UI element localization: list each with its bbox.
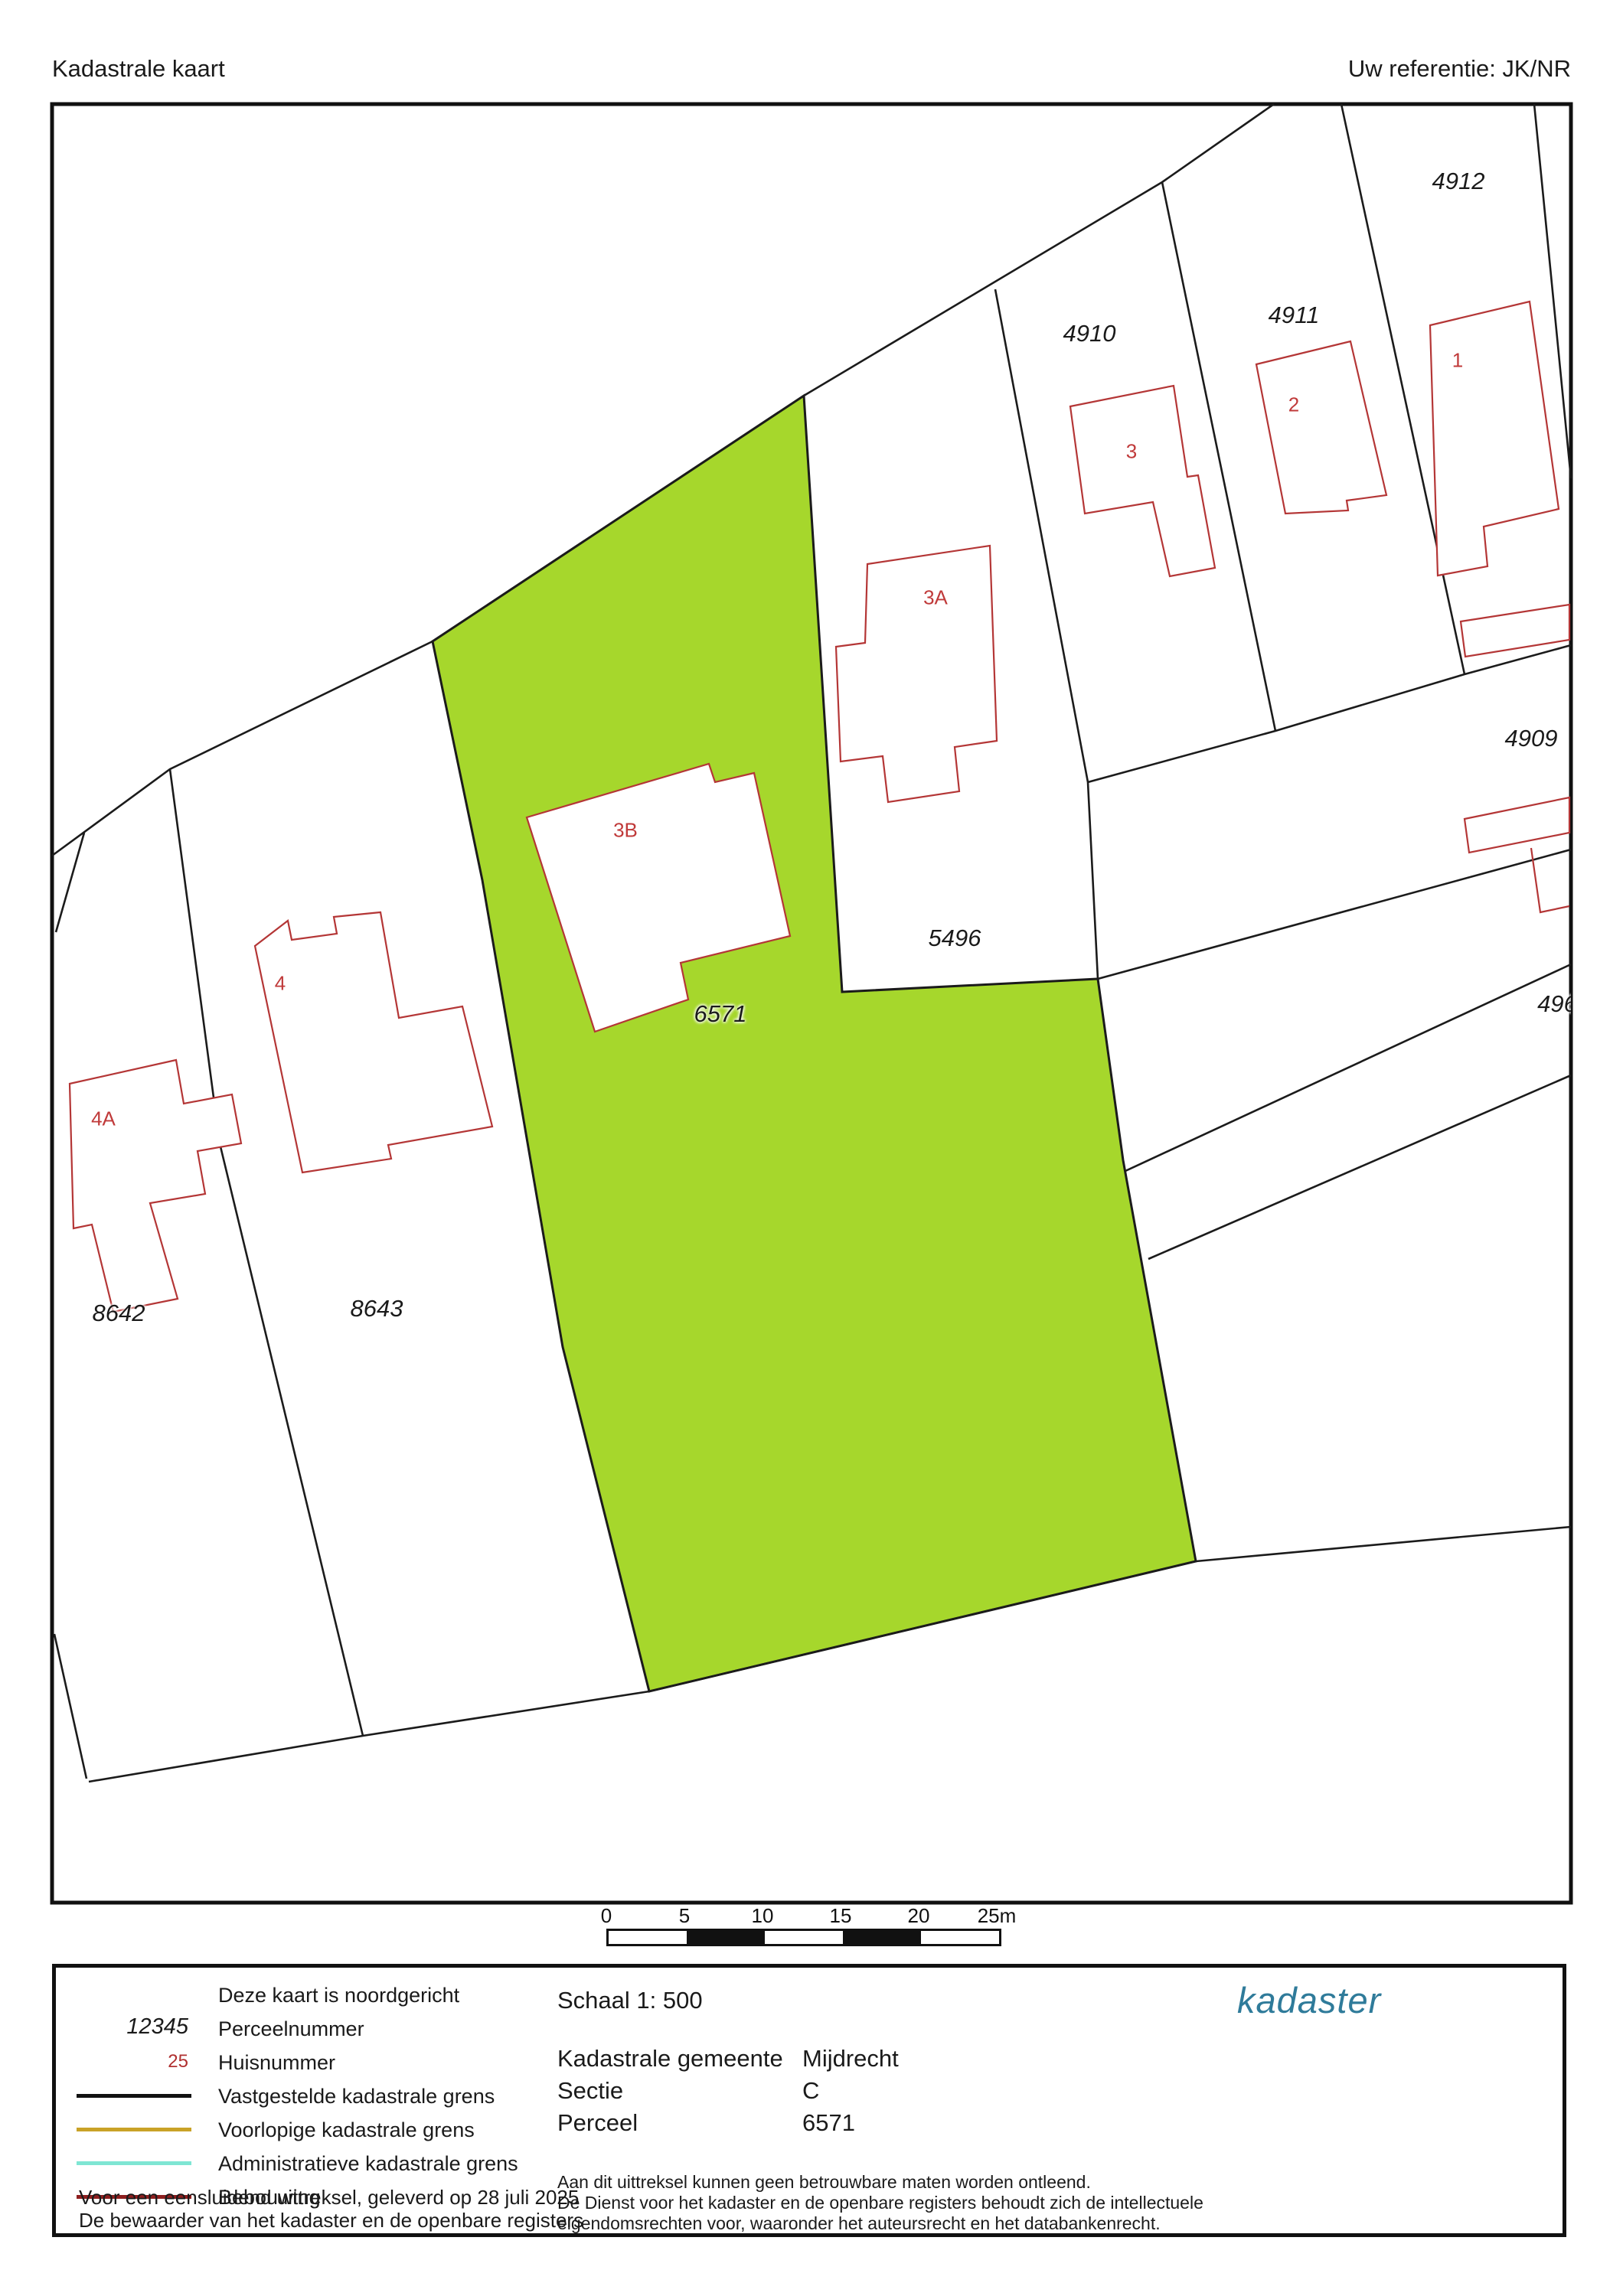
scale-tick-10: 10 — [752, 1904, 774, 1928]
scale-bar-segment — [765, 1931, 843, 1944]
detail-label-1: Sectie — [557, 2077, 623, 2105]
legend-item-label: Perceelnummer — [218, 2017, 364, 2041]
north-note: Deze kaart is noordgericht — [218, 1984, 459, 2007]
parcel-label-8643: 8643 — [351, 1295, 403, 1322]
legend-line-sample — [77, 2161, 191, 2165]
house-number-label-1: 1 — [1452, 349, 1463, 373]
scale-bar-segment — [687, 1931, 765, 1944]
detail-value-2: 6571 — [802, 2109, 855, 2137]
scale-text: Schaal 1: 500 — [557, 1987, 703, 2014]
scale-tick-0: 0 — [601, 1904, 612, 1928]
legend-item-label: Huisnummer — [218, 2051, 335, 2075]
scale-tick-5: 5 — [679, 1904, 690, 1928]
house-number-label-3: 3 — [1126, 440, 1137, 464]
legend-footer-line: De bewaarder van het kadaster en de open… — [79, 2209, 583, 2232]
house-number-label-3A: 3A — [923, 586, 948, 610]
legend-line-sample — [77, 2094, 191, 2098]
house-number-label-4: 4 — [275, 972, 286, 996]
legend-item-label: Vastgestelde kadastrale grens — [218, 2085, 495, 2108]
map-labels-layer: 491249114910490949654966571864286431233A… — [52, 104, 1571, 1903]
disclaimer-line: Aan dit uittreksel kunnen geen betrouwba… — [557, 2172, 1091, 2193]
detail-label-0: Kadastrale gemeente — [557, 2045, 783, 2073]
kadaster-logo-text: kadaster — [1237, 1979, 1381, 2021]
legend-sample-house: 25 — [51, 2051, 188, 2073]
legend-item-label: Voorlopige kadastrale grens — [218, 2118, 475, 2142]
scale-tick-15: 15 — [830, 1904, 852, 1928]
detail-label-2: Perceel — [557, 2109, 638, 2137]
legend-item-label: Administratieve kadastrale grens — [218, 2152, 518, 2176]
parcel-label-6571: 6571 — [694, 1000, 747, 1028]
parcel-label-8642: 8642 — [93, 1300, 145, 1327]
scale-bar-segment — [609, 1931, 687, 1944]
detail-value-1: C — [802, 2077, 819, 2105]
disclaimer-line: De Dienst voor het kadaster en de openba… — [557, 2193, 1203, 2213]
parcel-label-4912: 4912 — [1432, 168, 1485, 195]
scale-bar-segment — [843, 1931, 921, 1944]
house-number-label-3B: 3B — [613, 819, 638, 843]
house-number-label-2: 2 — [1288, 393, 1299, 417]
legend-sample-parcel: 12345 — [51, 2014, 188, 2040]
disclaimer-line: eigendomsrechten voor, waaronder het aut… — [557, 2213, 1161, 2234]
scale-tick-20: 20 — [908, 1904, 930, 1928]
parcel-label-4911: 4911 — [1269, 302, 1320, 329]
parcel-label-4910: 4910 — [1063, 320, 1116, 347]
scale-tick-25m: 25m — [978, 1904, 1017, 1928]
page-title: Kadastrale kaart — [52, 55, 225, 83]
parcel-label-496: 496 — [1537, 990, 1571, 1018]
parcel-label-5496: 5496 — [929, 925, 981, 952]
scale-bar-segment — [921, 1931, 999, 1944]
parcel-label-4909: 4909 — [1505, 725, 1558, 752]
reference-text: Uw referentie: JK/NR — [1348, 55, 1571, 83]
house-number-label-4A: 4A — [91, 1107, 116, 1131]
legend-line-sample — [77, 2128, 191, 2131]
legend-footer-line: Voor een eensluidend uittreksel, gelever… — [79, 2186, 579, 2210]
detail-value-0: Mijdrecht — [802, 2045, 899, 2073]
scale-bar — [606, 1929, 1001, 1946]
